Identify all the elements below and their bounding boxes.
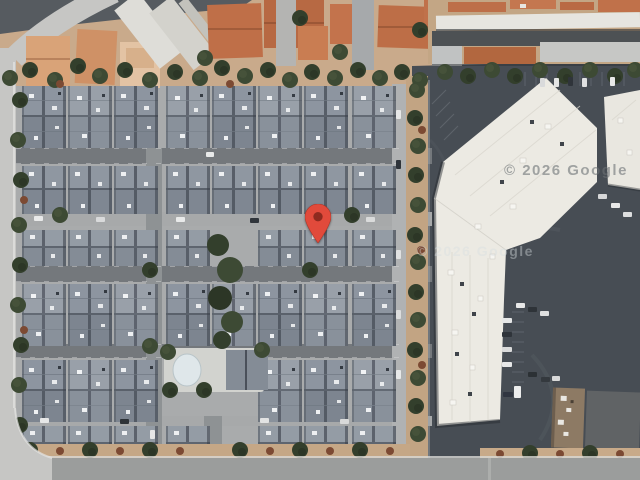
pin-inner-dot [313,212,322,221]
pin-icon [305,204,331,243]
map-viewport[interactable]: © 2026 Google © 2026 Google [0,0,640,480]
pin-body [305,204,331,243]
dropped-pin-marker[interactable] [305,204,331,243]
